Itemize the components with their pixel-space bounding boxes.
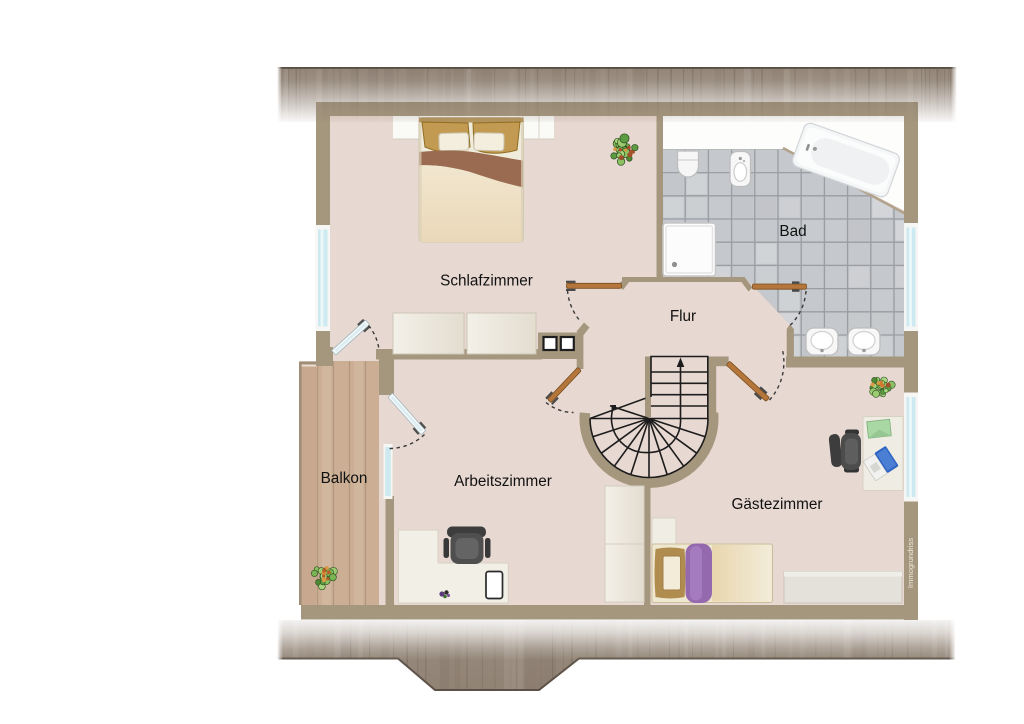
svg-text:Schlafzimmer: Schlafzimmer — [440, 273, 533, 290]
svg-text:Bad: Bad — [779, 223, 806, 240]
svg-text:Gästezimmer: Gästezimmer — [732, 496, 823, 513]
svg-text:Flur: Flur — [670, 308, 696, 325]
svg-text:Balkon: Balkon — [321, 470, 368, 487]
svg-text:Immogrundriss: Immogrundriss — [906, 538, 915, 588]
svg-text:Arbeitszimmer: Arbeitszimmer — [454, 473, 552, 490]
